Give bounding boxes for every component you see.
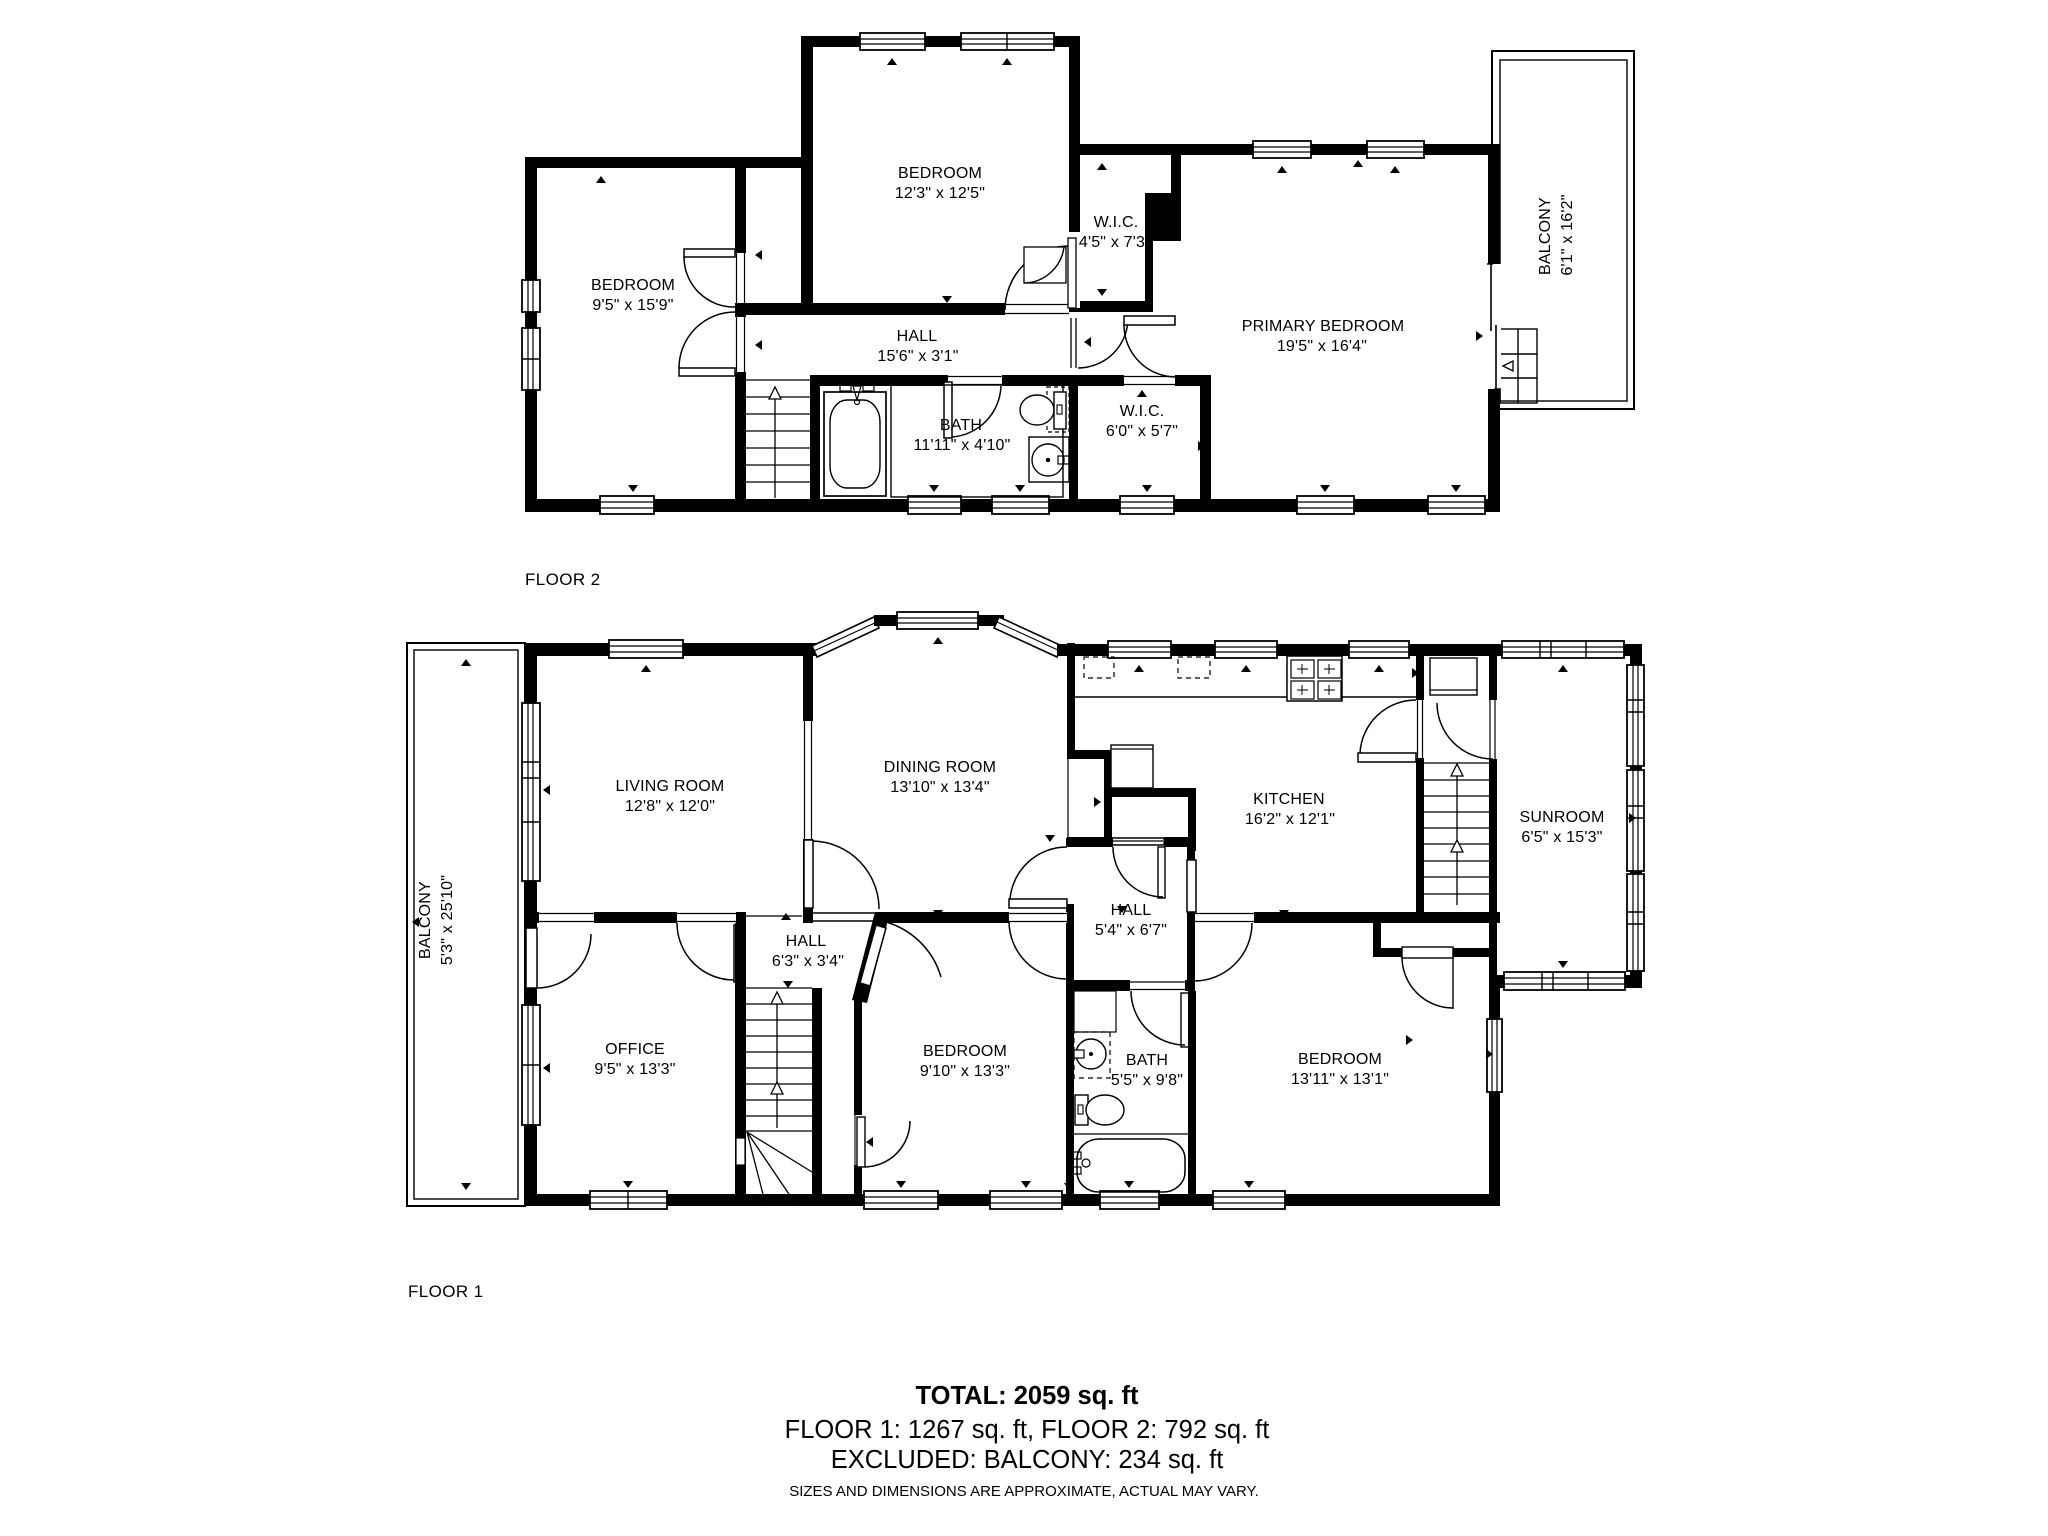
svg-text:9'10" x 13'3": 9'10" x 13'3" bbox=[920, 1063, 1010, 1080]
svg-text:BALCONY: BALCONY bbox=[1537, 197, 1554, 275]
svg-text:FLOOR 1: 1267 sq. ft, FLOOR 2:: FLOOR 1: 1267 sq. ft, FLOOR 2: 792 sq. f… bbox=[785, 1416, 1270, 1444]
svg-text:9'5" x 13'3": 9'5" x 13'3" bbox=[594, 1061, 675, 1078]
svg-text:W.I.C.: W.I.C. bbox=[1120, 403, 1165, 420]
svg-text:12'3" x 12'5": 12'3" x 12'5" bbox=[895, 185, 985, 202]
svg-text:BALCONY: BALCONY bbox=[417, 881, 434, 959]
svg-text:6'5" x 15'3": 6'5" x 15'3" bbox=[1521, 829, 1602, 846]
svg-text:5'5" x 9'8": 5'5" x 9'8" bbox=[1111, 1072, 1183, 1089]
svg-text:BEDROOM: BEDROOM bbox=[923, 1043, 1007, 1060]
svg-text:DINING ROOM: DINING ROOM bbox=[884, 759, 996, 776]
svg-text:HALL: HALL bbox=[1111, 902, 1152, 919]
svg-text:FLOOR 1: FLOOR 1 bbox=[408, 1282, 484, 1301]
svg-text:9'5" x 15'9": 9'5" x 15'9" bbox=[592, 297, 673, 314]
svg-text:6'0" x 5'7": 6'0" x 5'7" bbox=[1106, 423, 1178, 440]
svg-text:BEDROOM: BEDROOM bbox=[898, 165, 982, 182]
svg-text:SIZES AND DIMENSIONS ARE APPRO: SIZES AND DIMENSIONS ARE APPROXIMATE, AC… bbox=[789, 1483, 1259, 1500]
svg-text:BEDROOM: BEDROOM bbox=[1298, 1051, 1382, 1068]
svg-text:11'11" x 4'10": 11'11" x 4'10" bbox=[913, 437, 1010, 454]
svg-text:BATH: BATH bbox=[940, 417, 982, 434]
svg-text:HALL: HALL bbox=[786, 933, 827, 950]
svg-text:19'5" x 16'4": 19'5" x 16'4" bbox=[1277, 338, 1367, 355]
svg-text:OFFICE: OFFICE bbox=[605, 1041, 665, 1058]
svg-text:HALL: HALL bbox=[897, 328, 938, 345]
svg-text:6'3" x 3'4": 6'3" x 3'4" bbox=[772, 953, 844, 970]
svg-text:5'3" x 25'10": 5'3" x 25'10" bbox=[439, 875, 456, 965]
svg-text:13'10" x 13'4": 13'10" x 13'4" bbox=[890, 779, 989, 796]
svg-text:W.I.C.: W.I.C. bbox=[1094, 214, 1139, 231]
svg-text:BEDROOM: BEDROOM bbox=[591, 277, 675, 294]
svg-text:PRIMARY BEDROOM: PRIMARY BEDROOM bbox=[1242, 318, 1404, 335]
svg-text:BATH: BATH bbox=[1126, 1052, 1168, 1069]
svg-text:6'1" x 16'2": 6'1" x 16'2" bbox=[1559, 194, 1576, 275]
svg-text:LIVING ROOM: LIVING ROOM bbox=[616, 778, 725, 795]
svg-text:FLOOR 2: FLOOR 2 bbox=[525, 570, 601, 589]
svg-text:5'4" x 6'7": 5'4" x 6'7" bbox=[1095, 922, 1167, 939]
svg-text:EXCLUDED: BALCONY: 234 sq. ft: EXCLUDED: BALCONY: 234 sq. ft bbox=[831, 1446, 1224, 1474]
svg-text:12'8" x 12'0": 12'8" x 12'0" bbox=[625, 798, 715, 815]
svg-text:16'2" x 12'1": 16'2" x 12'1" bbox=[1245, 811, 1335, 828]
svg-text:4'5" x 7'3: 4'5" x 7'3 bbox=[1079, 234, 1145, 251]
svg-text:13'11" x 13'1": 13'11" x 13'1" bbox=[1291, 1071, 1389, 1088]
svg-text:KITCHEN: KITCHEN bbox=[1253, 791, 1325, 808]
svg-text:15'6" x 3'1": 15'6" x 3'1" bbox=[877, 348, 958, 365]
svg-text:TOTAL: 2059 sq. ft: TOTAL: 2059 sq. ft bbox=[916, 1382, 1139, 1410]
svg-text:SUNROOM: SUNROOM bbox=[1520, 809, 1605, 826]
